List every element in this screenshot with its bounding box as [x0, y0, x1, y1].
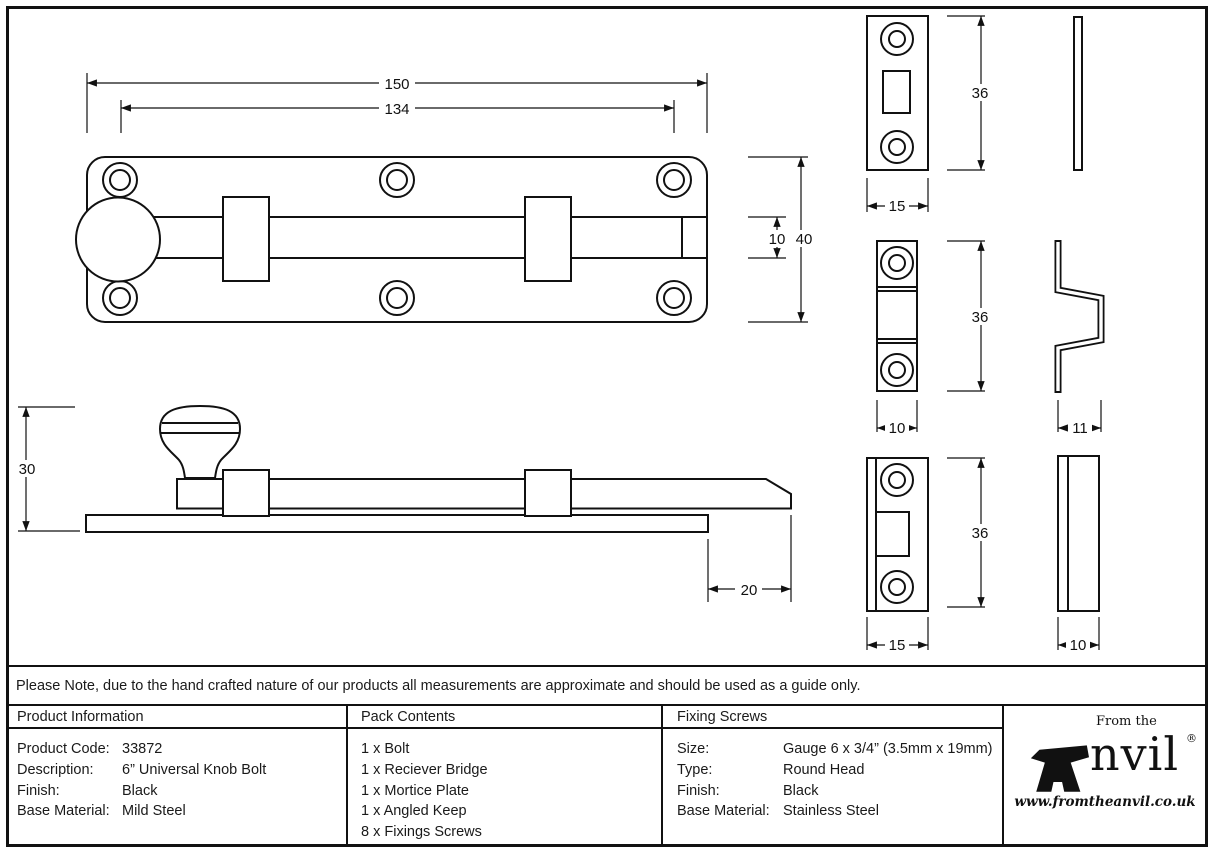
fixing-screws-header: Fixing Screws [677, 709, 767, 726]
dim-label-side-height: 30 [19, 461, 36, 478]
anvil-icon [1026, 740, 1096, 796]
measurement-note: Please Note, due to the hand crafted nat… [16, 678, 860, 695]
row-value: Stainless Steel [783, 803, 879, 820]
receiver-bridge-view [877, 241, 917, 391]
row-label: Base Material: [17, 803, 110, 820]
row-label: Product Code: [17, 741, 110, 758]
guide-bracket-right [525, 197, 571, 281]
dim-label-overall-length: 150 [384, 76, 409, 93]
pack-item: 1 x Mortice Plate [361, 783, 469, 800]
row-value: 6” Universal Knob Bolt [122, 762, 266, 779]
table-line [661, 704, 663, 845]
logo-brand-text: nvil [1090, 724, 1179, 784]
side-view-knob-bolt [86, 406, 791, 532]
row-value: Gauge 6 x 3/4” (3.5mm x 19mm) [783, 741, 993, 758]
pack-item: 1 x Reciever Bridge [361, 762, 488, 779]
table-line [6, 727, 1003, 729]
product-information-header: Product Information [17, 709, 144, 726]
dim-label-mortice-width: 15 [889, 198, 906, 215]
angled-keep-side [1058, 456, 1099, 611]
table-line [6, 665, 1208, 667]
row-label: Finish: [17, 783, 60, 800]
brand-logo: From the nvil ® www.fromtheanvil.co.uk [1004, 706, 1206, 847]
row-label: Finish: [677, 783, 720, 800]
dim-label-keep-depth: 10 [1070, 637, 1087, 654]
dim-label-hole-spacing: 134 [384, 101, 409, 118]
receiver-bridge-profile [1055, 240, 1102, 393]
pack-item: 1 x Bolt [361, 741, 409, 758]
dim-label-keep-width: 15 [889, 637, 906, 654]
row-label: Size: [677, 741, 709, 758]
mortice-slot [883, 71, 910, 113]
row-value: Mild Steel [122, 803, 186, 820]
row-value: Round Head [783, 762, 864, 779]
dim-label-bolt-throw: 20 [741, 582, 758, 599]
table-line [346, 704, 348, 845]
drawing-area: 150 134 10 40 30 20 [0, 0, 1214, 667]
row-value: 33872 [122, 741, 162, 758]
row-label: Description: [17, 762, 94, 779]
pack-contents-header: Pack Contents [361, 709, 455, 726]
technical-drawing-sheet: 150 134 10 40 30 20 [0, 0, 1214, 853]
row-value: Black [122, 783, 157, 800]
registered-mark: ® [1186, 732, 1197, 745]
dim-label-mortice-height: 36 [972, 85, 989, 102]
dim-label-plate-height: 40 [796, 231, 813, 248]
front-view-knob-bolt [76, 157, 707, 322]
mortice-plate-side [1074, 17, 1082, 170]
row-value: Black [783, 783, 818, 800]
dim-label-keep-height: 36 [972, 525, 989, 542]
row-label: Type: [677, 762, 712, 779]
logo-url: www.fromtheanvil.co.uk [1004, 794, 1206, 810]
backplate-side [86, 515, 708, 532]
dim-label-bridge-height: 36 [972, 309, 989, 326]
guide-bracket-right-side [525, 470, 571, 516]
knob-front [76, 198, 160, 282]
guide-bracket-left-side [223, 470, 269, 516]
keep-slot [876, 512, 909, 556]
pack-item: 1 x Angled Keep [361, 803, 467, 820]
pack-item: 8 x Fixings Screws [361, 824, 482, 841]
bolt-shaft [118, 217, 707, 258]
guide-bracket-left [223, 197, 269, 281]
dim-label-bolt-width: 10 [769, 231, 786, 248]
row-label: Base Material: [677, 803, 770, 820]
dim-label-bridge-depth: 11 [1072, 420, 1088, 437]
dim-label-bridge-width: 10 [889, 420, 906, 437]
knob-side [160, 406, 240, 478]
